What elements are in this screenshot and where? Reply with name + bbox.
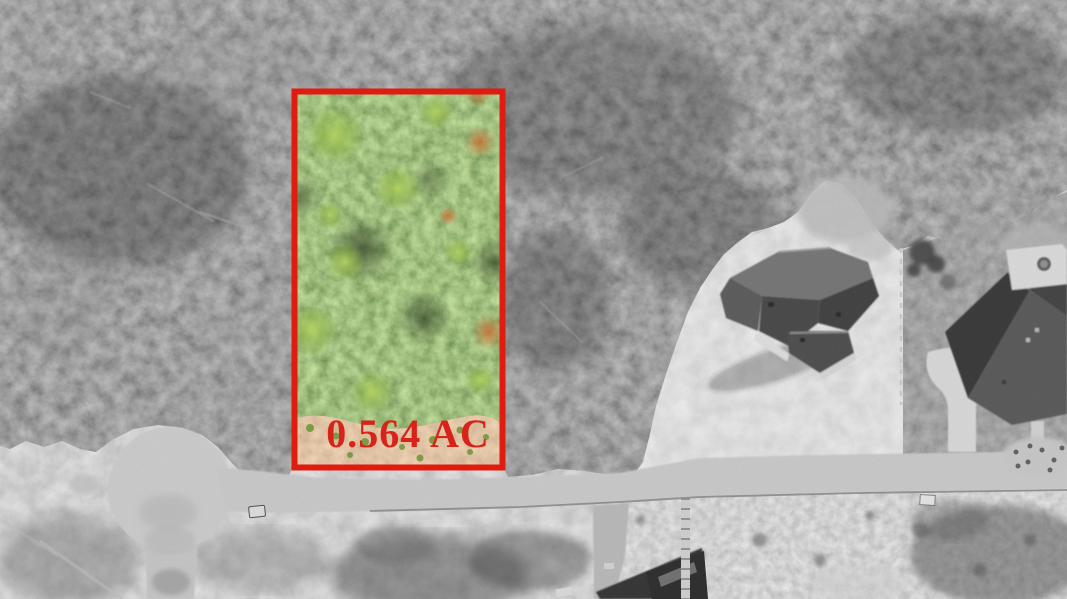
aerial-photo: 0.564 AC: [0, 0, 1067, 599]
lot-acreage-label: 0.564 AC: [326, 411, 490, 456]
aerial-photo-canvas: 0.564 AC: [0, 0, 1067, 599]
film-grain: [0, 0, 1067, 599]
